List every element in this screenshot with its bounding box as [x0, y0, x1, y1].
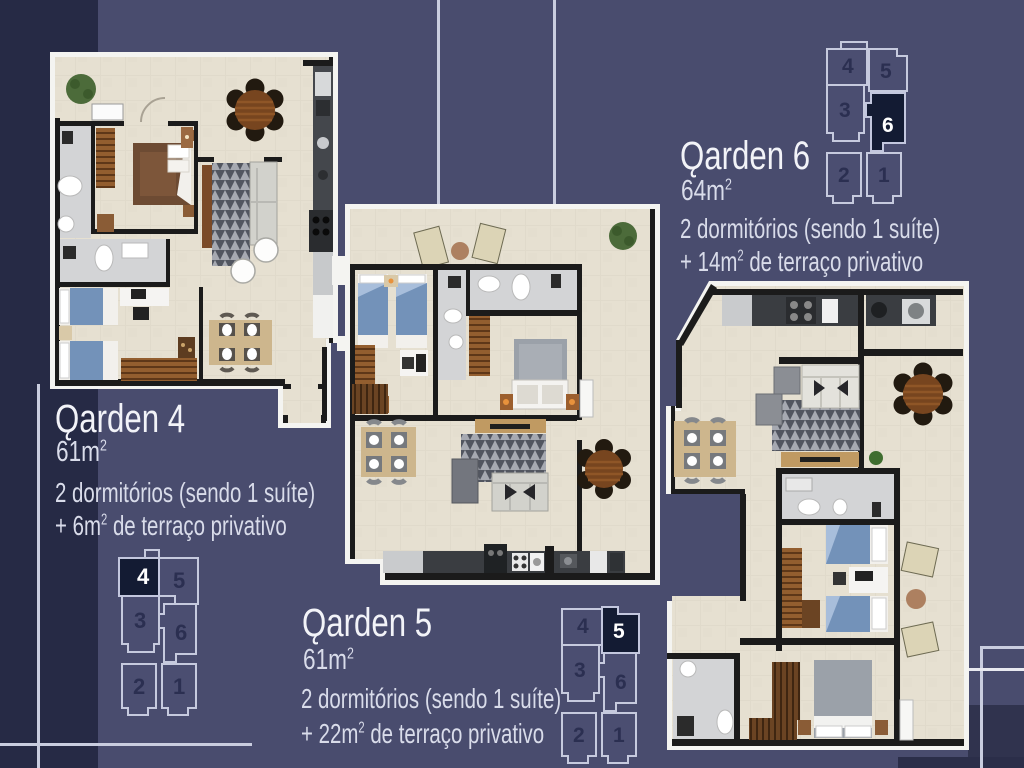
- svg-text:2: 2: [573, 724, 585, 747]
- svg-text:6: 6: [615, 671, 627, 694]
- svg-text:3: 3: [574, 659, 586, 682]
- svg-text:2: 2: [133, 674, 145, 699]
- svg-text:3: 3: [134, 608, 146, 633]
- svg-text:2: 2: [838, 164, 850, 187]
- svg-text:6: 6: [175, 620, 187, 645]
- svg-text:1: 1: [173, 674, 185, 699]
- svg-text:4: 4: [577, 615, 589, 638]
- svg-text:1: 1: [878, 164, 890, 187]
- svg-text:4: 4: [842, 55, 854, 78]
- svg-text:3: 3: [839, 99, 851, 122]
- svg-text:1: 1: [613, 724, 625, 747]
- svg-text:5: 5: [613, 620, 625, 643]
- svg-text:4: 4: [137, 564, 150, 589]
- svg-text:6: 6: [882, 114, 894, 137]
- svg-text:5: 5: [880, 60, 892, 83]
- svg-text:5: 5: [173, 568, 185, 593]
